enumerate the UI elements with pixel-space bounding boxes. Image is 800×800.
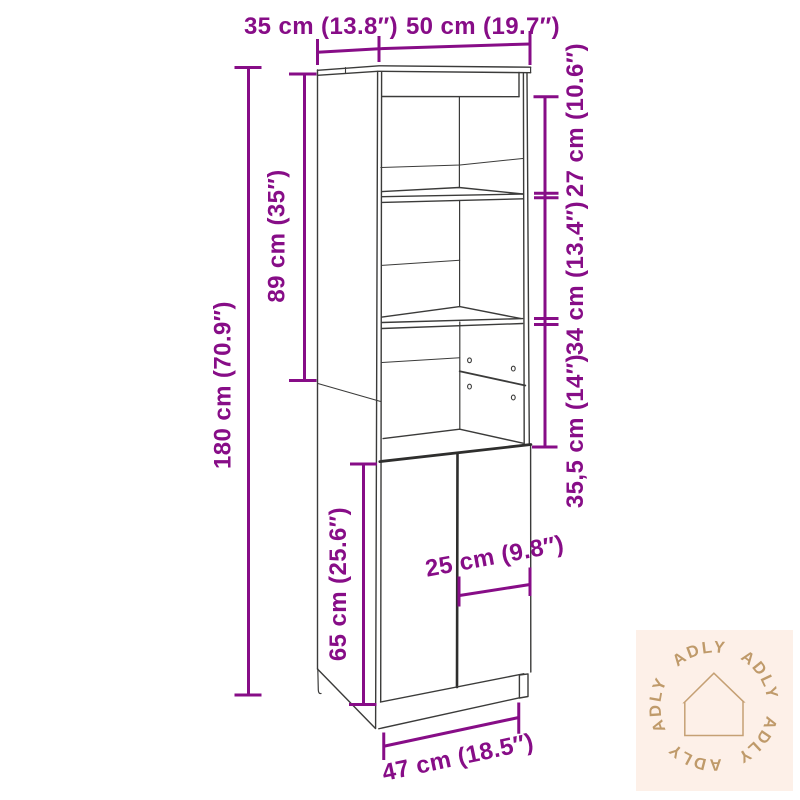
svg-text:50 cm (19.7″): 50 cm (19.7″)	[406, 13, 560, 40]
svg-text:180 cm (70.9″): 180 cm (70.9″)	[210, 301, 237, 469]
svg-text:65 cm (25.6″): 65 cm (25.6″)	[325, 507, 352, 661]
svg-text:27 cm (10.6″): 27 cm (10.6″)	[562, 43, 589, 197]
svg-text:47 cm (18.5″): 47 cm (18.5″)	[380, 728, 536, 786]
svg-text:34 cm (13.4″): 34 cm (13.4″)	[562, 201, 589, 355]
svg-text:89 cm (35″): 89 cm (35″)	[264, 169, 291, 302]
svg-text:25 cm (9.8″): 25 cm (9.8″)	[423, 531, 566, 583]
svg-text:35,5 cm (14″): 35,5 cm (14″)	[562, 354, 589, 508]
svg-text:35 cm (13.8″): 35 cm (13.8″)	[244, 13, 398, 40]
